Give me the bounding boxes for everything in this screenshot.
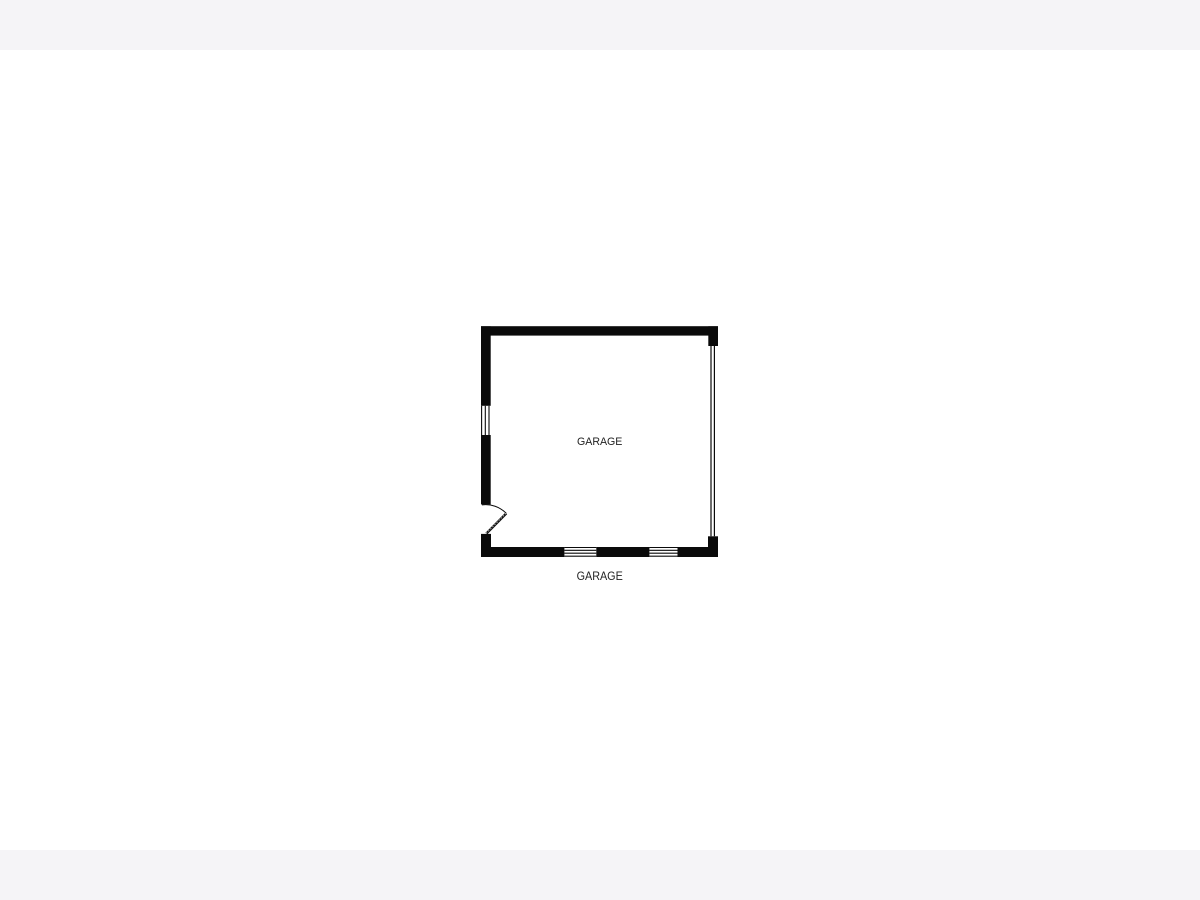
svg-text:GARAGE: GARAGE	[577, 436, 622, 448]
svg-text:GARAGE: GARAGE	[577, 569, 623, 583]
